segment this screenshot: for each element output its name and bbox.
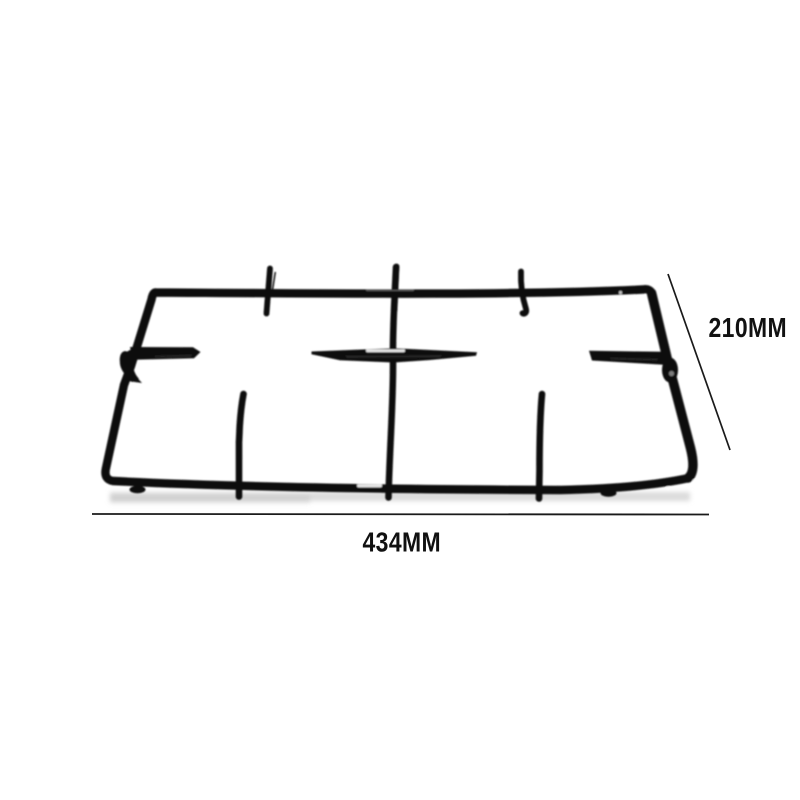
svg-text:210MM: 210MM xyxy=(709,313,788,344)
svg-text:434MM: 434MM xyxy=(363,527,442,558)
